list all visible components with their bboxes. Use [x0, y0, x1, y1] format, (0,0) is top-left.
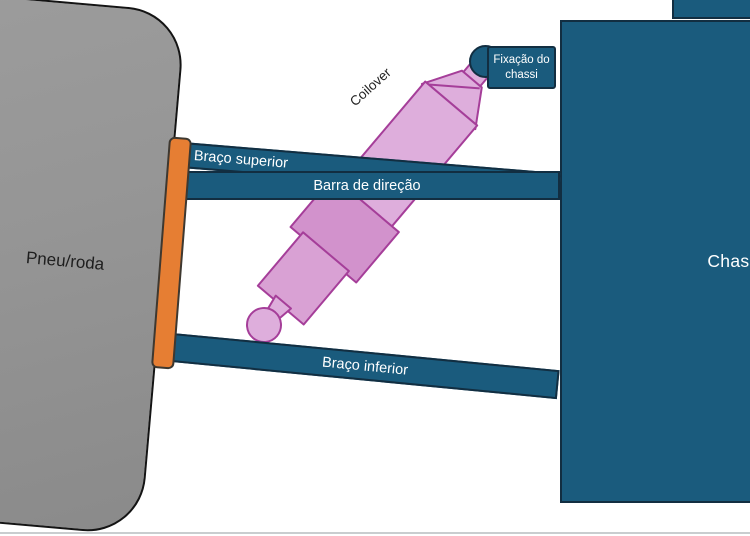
lower-arm-bar: Braço inferior	[171, 333, 560, 399]
steering-bar-label: Barra de direção	[313, 178, 420, 194]
coilover-lower-tube	[258, 232, 349, 324]
slide-bottom-edge-line	[0, 532, 750, 534]
lower-arm-label: Braço inferior	[321, 354, 408, 378]
chassis-mount-label-box: Fixação do chassi	[487, 46, 556, 89]
chassis-mount-label: Fixação do chassi	[489, 53, 554, 83]
coilover-label: Coilover	[347, 65, 394, 109]
steering-bar: Barra de direção	[174, 171, 560, 200]
top-right-partial-shape	[672, 0, 750, 19]
chassis-label: Chassi	[707, 251, 750, 272]
suspension-diagram: Pneu/roda Coilover Chassi Braço superior	[0, 0, 750, 536]
coilover-stem	[264, 296, 291, 323]
chassis-shape: Chassi	[560, 20, 750, 503]
upper-arm-label: Braço superior	[193, 148, 288, 172]
